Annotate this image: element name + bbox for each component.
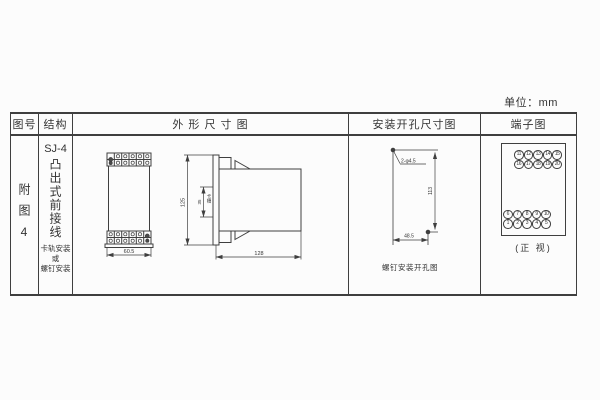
terminal-8: 8: [522, 210, 532, 220]
table-body-row: 附图4 SJ-4 凸出式前接线 卡轨安装 或 螺钉安装: [11, 136, 576, 294]
model-text: SJ-4: [44, 143, 67, 155]
header-terminal: 端子图: [481, 114, 576, 134]
mounting-hole-drawing: 113 48.5 2-φ4.5 螺钉安装开孔图: [349, 136, 481, 292]
side-view-drawing: [213, 155, 301, 245]
mount-note-line1: 卡轨安装: [41, 244, 71, 254]
structure-type-text: 凸出式前接线: [47, 158, 64, 239]
unit-label: 单位：mm: [485, 94, 577, 110]
hole-callout-label: 2-φ4.5: [401, 159, 416, 165]
header-outline: 外 形 尺 寸 图: [73, 114, 349, 134]
table-header-row: 图号 结构 外 形 尺 寸 图 安装开孔尺寸图 端子图: [11, 114, 576, 136]
terminal-19: 19: [543, 160, 553, 170]
mount-note-line2: 或: [41, 254, 71, 264]
terminal-row-2: 1617181920: [514, 160, 562, 178]
terminal-13: 13: [533, 150, 543, 160]
cell-terminal-diagram: 1112131415 1617181920 678910 12345 (正 视): [481, 136, 576, 294]
cell-structure: SJ-4 凸出式前接线 卡轨安装 或 螺钉安装: [39, 136, 73, 294]
terminal-12: 12: [524, 150, 534, 160]
terminal-10: 10: [541, 210, 551, 220]
datasheet-page: 单位：mm 图号 结构 外 形 尺 寸 图 安装开孔尺寸图 端子图 附图4 SJ…: [0, 0, 600, 400]
mounting-hole-bottom: [426, 230, 431, 235]
terminal-5: 5: [541, 219, 551, 229]
terminal-16: 16: [514, 160, 524, 170]
terminal-14: 14: [543, 150, 553, 160]
vertical-spacing-label: 113: [428, 187, 434, 195]
terminal-18: 18: [533, 160, 543, 170]
mounting-caption: 螺钉安装开孔图: [382, 262, 438, 272]
header-figure-no: 图号: [11, 114, 39, 134]
header-mounting: 安装开孔尺寸图: [349, 114, 481, 134]
terminal-11: 11: [514, 150, 524, 160]
rail-slot-text-label: 卡槽: [206, 193, 212, 205]
figure-no-text: 附图4: [16, 183, 33, 248]
terminal-4: 4: [532, 219, 542, 229]
rail-slot-dim-label: 35: [197, 199, 202, 205]
terminal-2: 2: [513, 219, 523, 229]
spec-table: 图号 结构 外 形 尺 寸 图 安装开孔尺寸图 端子图 附图4 SJ-4 凸出式…: [10, 112, 577, 296]
terminal-1: 1: [503, 219, 513, 229]
cell-outline-drawing: 60.5 125: [73, 136, 349, 294]
terminal-15: 15: [552, 150, 562, 160]
cell-figure-no: 附图4: [11, 136, 39, 294]
side-depth-label: 128: [254, 251, 263, 257]
terminal-20: 20: [552, 160, 562, 170]
terminal-caption: (正 视): [501, 241, 566, 254]
front-terminal-screws: [109, 155, 150, 243]
front-width-label: 60.5: [124, 249, 135, 255]
terminal-row-4: 12345: [503, 219, 551, 237]
terminal-9: 9: [532, 210, 542, 220]
outline-dimension-drawing: 60.5 125: [73, 136, 349, 292]
cell-mounting-drawing: 113 48.5 2-φ4.5 螺钉安装开孔图: [349, 136, 481, 294]
mount-note: 卡轨安装 或 螺钉安装: [41, 244, 71, 274]
terminal-6: 6: [503, 210, 513, 220]
terminal-17: 17: [524, 160, 534, 170]
header-structure: 结构: [39, 114, 73, 134]
terminal-3: 3: [522, 219, 532, 229]
horizontal-spacing-label: 48.5: [404, 234, 414, 240]
terminal-7: 7: [513, 210, 523, 220]
mount-note-line3: 螺钉安装: [41, 264, 71, 274]
side-height-label: 125: [181, 198, 187, 207]
